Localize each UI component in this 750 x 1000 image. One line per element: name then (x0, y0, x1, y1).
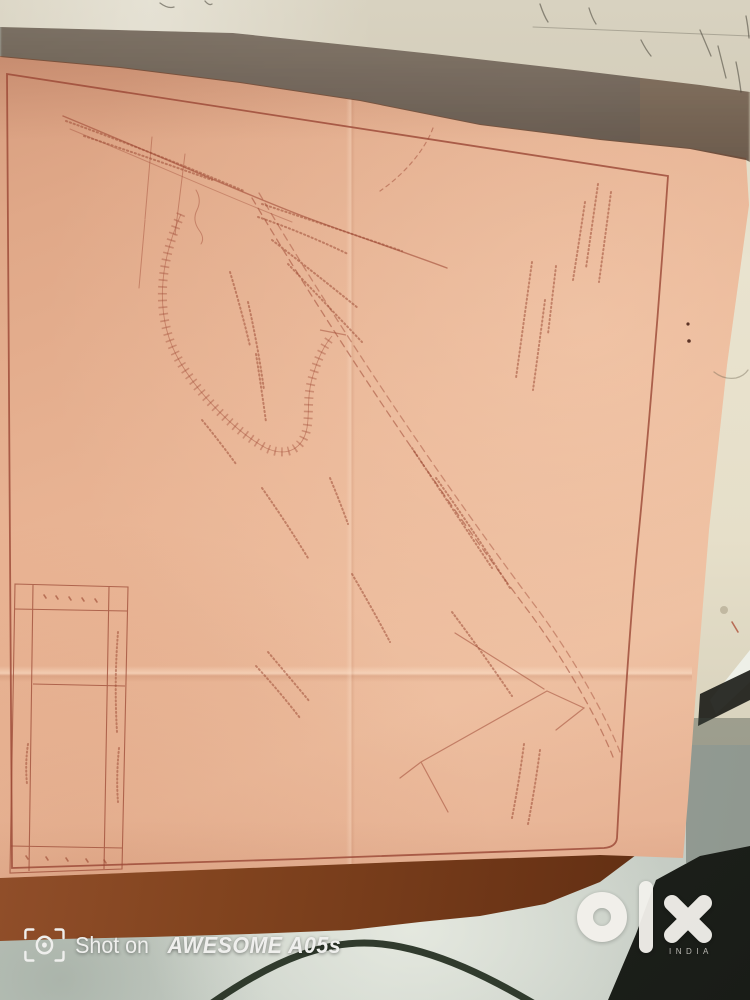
olx-letter-o-icon (577, 892, 627, 942)
camera-viewfinder-icon (24, 928, 65, 962)
device-label: AWESOME A05s (167, 934, 341, 957)
photo-of-survey-map: Shot on AWESOME A05s INDIA (0, 0, 750, 1000)
olx-letter-l-icon (639, 881, 653, 953)
olx-logo: INDIA (577, 881, 750, 963)
floor-shadow-right (686, 718, 750, 863)
paper-bottom-shade (0, 0, 750, 1000)
pink-survey-paper (0, 0, 750, 1000)
olx-letter-x-icon (663, 894, 713, 944)
shot-on-label: Shot on (75, 934, 149, 957)
shot-on-watermark: Shot on AWESOME A05s (24, 928, 341, 962)
india-label: INDIA (669, 947, 713, 956)
